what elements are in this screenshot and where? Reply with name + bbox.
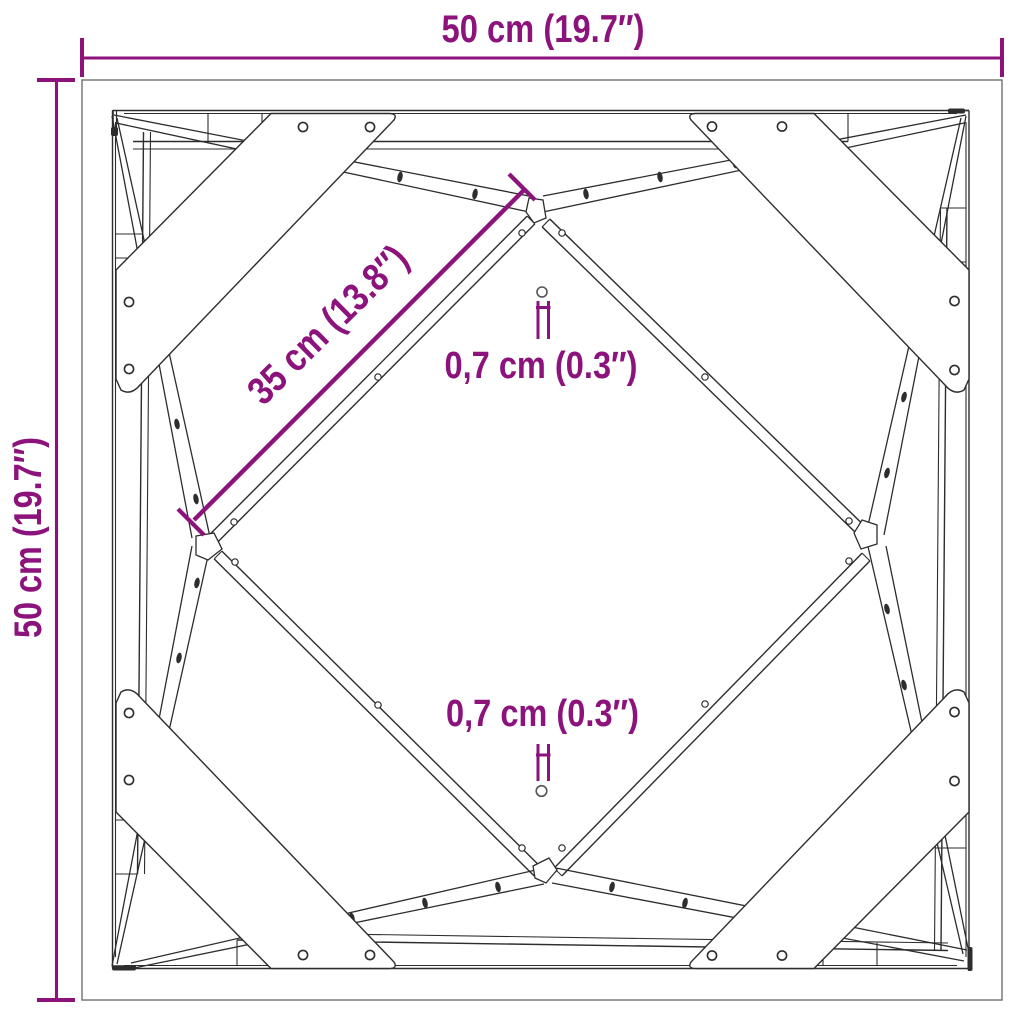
svg-text:50 cm (19.7″): 50 cm (19.7″) [7, 437, 50, 638]
svg-text:0,7 cm (0.3″): 0,7 cm (0.3″) [445, 345, 638, 387]
svg-text:0,7 cm (0.3″): 0,7 cm (0.3″) [446, 693, 639, 735]
svg-text:50 cm (19.7″): 50 cm (19.7″) [442, 8, 645, 51]
